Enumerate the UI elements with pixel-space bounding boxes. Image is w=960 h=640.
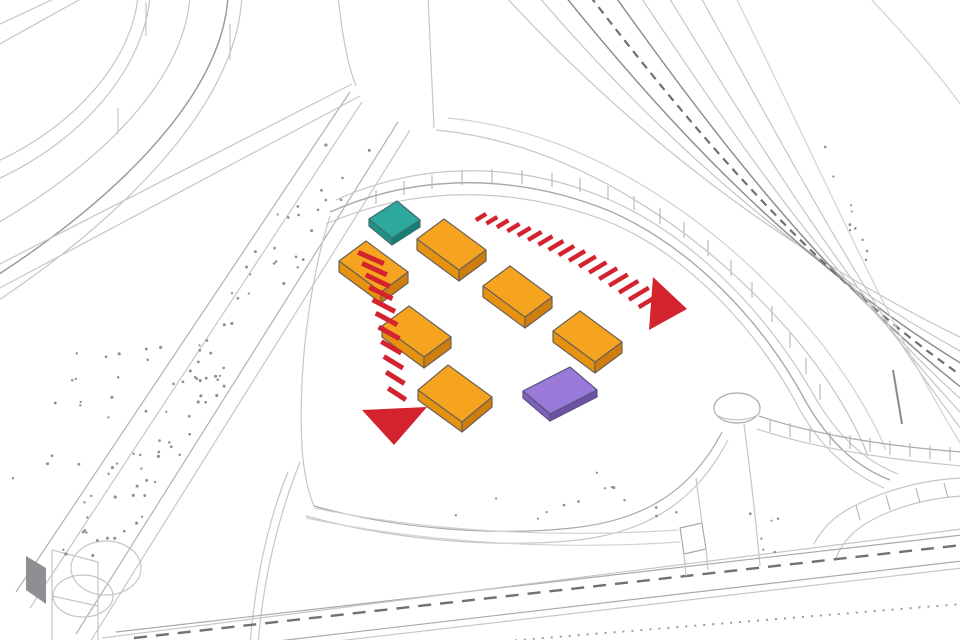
orange-building-block-2 bbox=[339, 241, 408, 303]
purple-building-block bbox=[523, 367, 597, 421]
orange-building-block-5 bbox=[553, 311, 622, 373]
site-linework bbox=[0, 0, 960, 640]
orange-building-block-3 bbox=[483, 266, 552, 328]
site-axonometric-diagram bbox=[0, 0, 960, 640]
orange-building-block-1 bbox=[417, 219, 486, 281]
site-massing-diagram bbox=[0, 0, 960, 640]
teal-building-block bbox=[369, 201, 420, 245]
orange-building-block-6 bbox=[418, 365, 492, 432]
